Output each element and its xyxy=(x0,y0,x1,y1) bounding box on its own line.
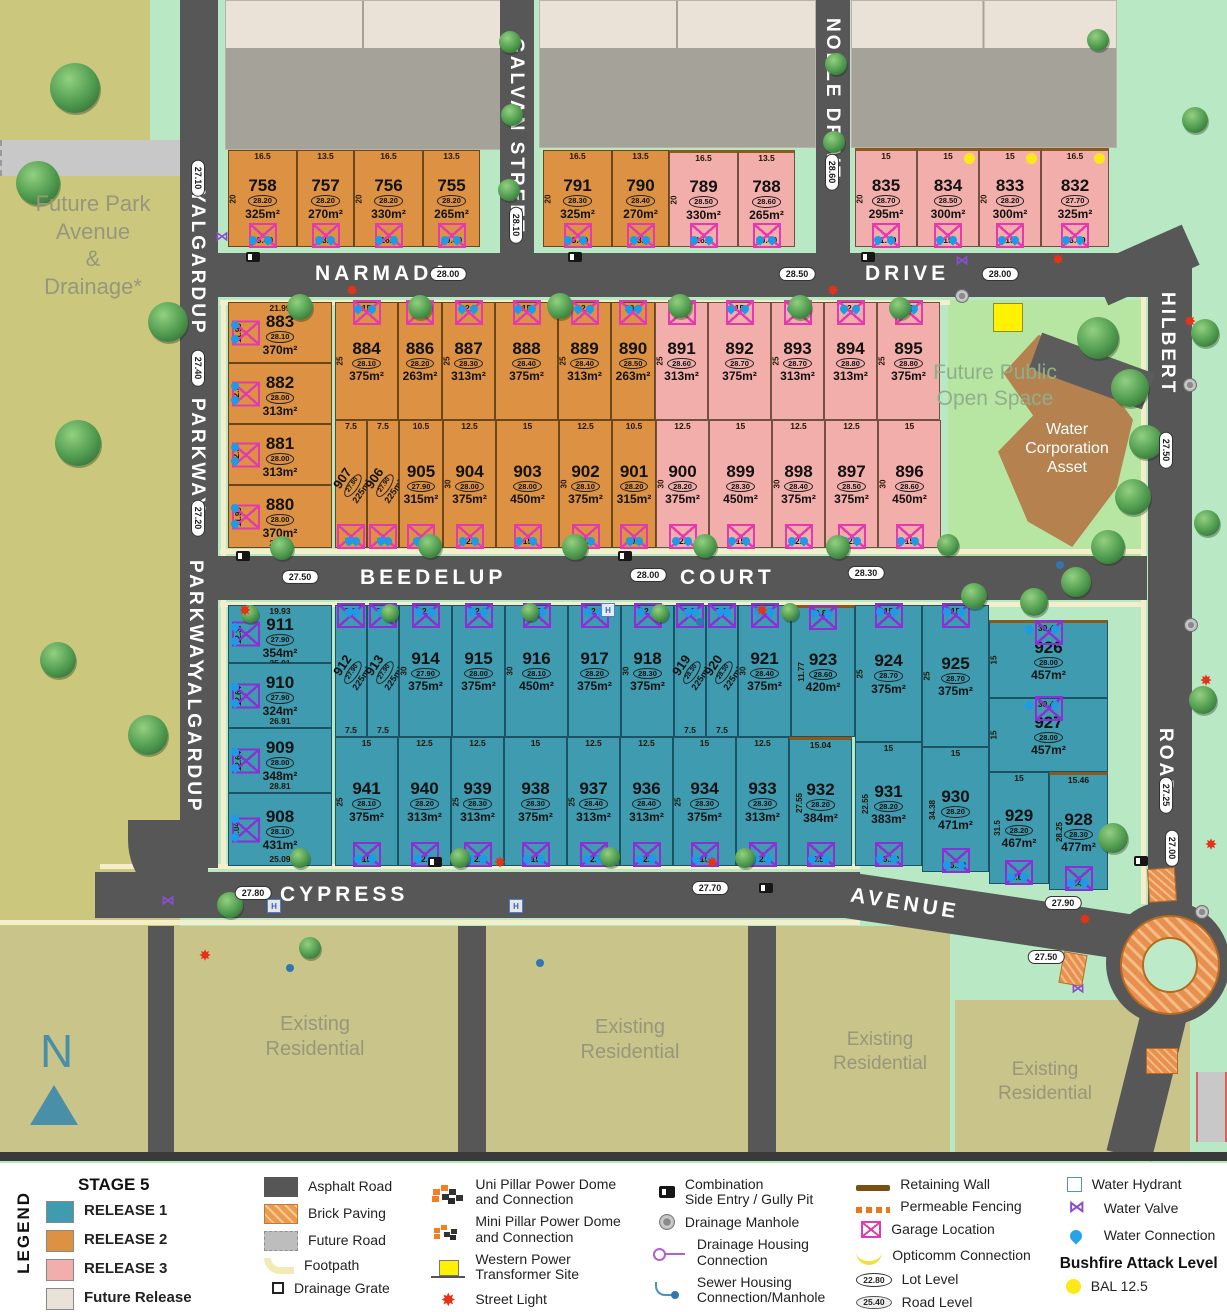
lot-number: 939 xyxy=(463,780,491,797)
tree-icon xyxy=(408,295,432,319)
lot-area: 450m² xyxy=(892,493,927,505)
fencing-icon xyxy=(856,1207,890,1213)
legend-item: Footpath xyxy=(264,1258,431,1274)
lot-depth-dim: 30 xyxy=(879,480,887,489)
lot-depth-dim: 20 xyxy=(670,195,678,204)
lot-758: 16.575828.20325m²13.4920 xyxy=(228,150,297,247)
lot-level: 28.10 xyxy=(266,826,295,838)
lot-area: 324m² xyxy=(263,705,298,717)
road-level-badge: 28.10 xyxy=(509,207,523,244)
lot-number: 904 xyxy=(455,463,483,480)
garage-location-icon xyxy=(455,300,483,325)
lot-info: 83428.50300m² xyxy=(931,177,966,220)
lot-level: 28.30 xyxy=(1064,829,1093,841)
traffic-island xyxy=(1146,1048,1178,1074)
lot-number: 882 xyxy=(266,374,294,391)
lot-dim-bottom: 7.5 xyxy=(716,726,728,735)
lot-depth-dim: 25 xyxy=(336,797,344,806)
street-light-icon: ✸ xyxy=(199,949,212,964)
legend-item: RELEASE 3 xyxy=(38,1259,264,1281)
lot-level: 28.50 xyxy=(689,196,718,208)
lot-info: 90527.90315m² xyxy=(404,463,439,506)
legend-stage-column: STAGE 5 RELEASE 1RELEASE 2RELEASE 3Futur… xyxy=(38,1173,264,1312)
lot-info: 91528.00375m² xyxy=(461,650,496,693)
road-level-badge: 28.00 xyxy=(430,267,467,281)
lot-dim-top: 12.5 xyxy=(790,422,807,431)
road-label-parkway-2: PARKWAY xyxy=(184,560,206,675)
lot-depth-dim: 20 xyxy=(355,194,363,203)
legend-item: Permeable Fencing xyxy=(856,1199,1059,1214)
lot-number: 898 xyxy=(784,463,812,480)
manhole-icon xyxy=(659,1214,675,1230)
lot-info: 78828.60265m² xyxy=(749,178,784,221)
lot-depth-dim: 20 xyxy=(980,194,988,203)
lot-area: 263m² xyxy=(616,370,651,382)
road-level-badge: 28.30 xyxy=(848,566,885,580)
road-level-badge: 27.50 xyxy=(282,570,319,584)
lot-901: 10.590128.20315m²10.5 xyxy=(612,420,656,548)
lot-number: 925 xyxy=(941,655,969,672)
brick-icon xyxy=(264,1204,298,1224)
lot-number: 923 xyxy=(809,651,837,668)
legend-section-header: Bushfire Attack Level xyxy=(1060,1255,1227,1273)
tree-icon xyxy=(1189,686,1217,714)
lot-info: 88028.00370m² xyxy=(263,496,298,539)
lot-area: 375m² xyxy=(509,370,544,382)
road-level-badge: 28.60 xyxy=(825,154,839,191)
lot-level: 28.20 xyxy=(437,195,466,207)
tree-icon xyxy=(937,534,959,556)
road-level-badge: 27.25 xyxy=(1159,777,1173,814)
sewer-manhole-icon xyxy=(696,618,704,626)
lot-number: 918 xyxy=(633,650,661,667)
legend-item: ⋈Water Valve xyxy=(1060,1199,1227,1219)
lot-791: 16.579128.30325m²13.4920 xyxy=(543,150,612,247)
lot-info: 92328.60420m² xyxy=(806,651,841,694)
lot-level: 28.50 xyxy=(837,481,866,493)
garage-location-icon xyxy=(1035,620,1063,645)
lot-info: 93928.30313m² xyxy=(460,780,495,823)
lot-757: 13.575728.20270m²13.5 xyxy=(297,150,354,247)
lot-dim-top: 15 xyxy=(951,749,960,758)
legend-item-label: Combination Side Entry / Gully Pit xyxy=(685,1177,813,1208)
road-level-badge: 28.50 xyxy=(779,267,816,281)
water-valve-icon: ⋈ xyxy=(162,894,175,907)
tree-icon xyxy=(40,642,76,678)
lot-level: 28.70 xyxy=(941,673,970,685)
lot-info: 90928.00348m² xyxy=(263,739,298,782)
roadlevel-icon: 25.40 xyxy=(856,1296,891,1310)
lot-info: 91427.90375m² xyxy=(408,650,443,693)
legend-item: Combination Side Entry / Gully Pit xyxy=(653,1177,856,1208)
street-light-icon: ✸ xyxy=(827,284,840,299)
street-light-icon: ✸ xyxy=(494,856,507,871)
north-label: N xyxy=(40,1028,73,1074)
lot-dim-top: 12.5 xyxy=(416,739,433,748)
legend-swatch xyxy=(46,1259,74,1281)
lot-756: 16.575628.20330m²16.520 xyxy=(354,150,423,247)
lot-933: 12.593328.30313m²12.5 xyxy=(736,737,789,866)
lot-info: 83227.70325m² xyxy=(1058,177,1093,220)
streetlight-icon: ✸ xyxy=(431,1290,465,1310)
lot-info: 88228.00313m² xyxy=(263,374,298,417)
tree-icon xyxy=(825,53,847,75)
lot-number: 884 xyxy=(352,340,380,357)
legend-item-label: Water Hydrant xyxy=(1092,1177,1182,1192)
lot-897: 12.589728.50375m²12.5 xyxy=(825,420,878,548)
drainage-manhole-icon xyxy=(1195,905,1209,919)
lot-dim-top: 15 xyxy=(943,152,952,161)
tree-icon xyxy=(826,535,850,559)
garage-location-icon xyxy=(465,603,493,628)
lot-833: 1583328.20300m²1520 xyxy=(979,148,1041,247)
lot-886: 10.588628.20263m² xyxy=(398,302,442,420)
lot-info: 93328.30313m² xyxy=(745,780,780,823)
tree-icon xyxy=(499,31,521,53)
lot-area: 313m² xyxy=(629,811,664,823)
lot-info: 89028.50263m² xyxy=(616,340,651,383)
lot-depth-dim: 25 xyxy=(452,797,460,806)
valve-icon: ⋈ xyxy=(1060,1199,1094,1219)
lot-dim-bottom: 25.09 xyxy=(269,855,290,864)
lotlevel-icon: 22.80 xyxy=(856,1273,891,1287)
road-level-badge: 28.00 xyxy=(982,267,1019,281)
lot-891: 12.589128.60313m²25 xyxy=(655,302,708,420)
lot-level: 28.40 xyxy=(570,358,599,370)
lot-number: 758 xyxy=(248,177,276,194)
tree-icon xyxy=(1194,510,1220,536)
lot-depth-dim: 25 xyxy=(856,669,864,678)
stage5-estate-plan: 16.575828.20325m²13.492013.575728.20270m… xyxy=(0,0,1227,1312)
legend-item-label: Opticomm Connection xyxy=(892,1248,1031,1263)
legend-column-roads: Asphalt RoadBrick PavingFuture RoadFootp… xyxy=(264,1173,431,1299)
lot-dim-top: 15 xyxy=(531,739,540,748)
legend-item: Retaining Wall xyxy=(856,1177,1059,1192)
lot-910: 91027.90324m²26.9112.64 xyxy=(228,663,332,728)
lot-area: 375m² xyxy=(408,680,443,692)
lot-area: 325m² xyxy=(1058,208,1093,220)
lot-903: 1590328.00450m²15 xyxy=(496,420,559,548)
lot-dim-top: 12.5 xyxy=(674,422,691,431)
lot-level: 27.70 xyxy=(1061,195,1090,207)
legend-item-label: RELEASE 1 xyxy=(84,1203,167,1220)
lot-area: 375m² xyxy=(747,680,782,692)
lot-940: 12.594028.20313m²12.5 xyxy=(398,737,451,866)
lot-number: 900 xyxy=(668,463,696,480)
legend-item-label: Water Connection xyxy=(1104,1228,1216,1243)
lot-area: 375m² xyxy=(781,493,816,505)
legend-item: Future Road xyxy=(264,1231,431,1251)
legend-item: Opticomm Connection xyxy=(856,1245,1059,1265)
lot-dim-top: 16.5 xyxy=(695,154,712,163)
lot-level: 28.40 xyxy=(579,798,608,810)
lot-914: 12.591427.90375m²30 xyxy=(399,605,452,737)
lot-dim-top: 15.46 xyxy=(1068,776,1089,785)
lot-info: 91127.90354m² xyxy=(263,616,298,659)
sewer-manhole-icon xyxy=(286,964,294,972)
lot-number: 887 xyxy=(454,340,482,357)
lot-dim-top: 13.5 xyxy=(317,152,334,161)
legend-item: Water Hydrant xyxy=(1060,1177,1227,1192)
lot-number: 789 xyxy=(689,178,717,195)
lot-881: 88128.00313m²12.5 xyxy=(228,424,332,485)
legend-side-label: LEGEND xyxy=(14,1191,34,1274)
garage-location-icon xyxy=(753,223,781,248)
lot-area: 375m² xyxy=(871,683,906,695)
drainage-manhole-icon xyxy=(1184,618,1198,632)
lot-level: 27.90 xyxy=(266,634,295,646)
lot-depth-dim: 25 xyxy=(878,357,886,366)
lot-info: 83328.20300m² xyxy=(993,177,1028,220)
tree-icon xyxy=(1077,317,1119,359)
lot-number: 909 xyxy=(266,739,294,756)
lot-info: 89828.40375m² xyxy=(781,463,816,506)
lot-info: 88428.10375m² xyxy=(349,340,384,383)
lot-834: 1583428.50300m²15 xyxy=(917,148,979,247)
gully-pit-icon xyxy=(236,551,250,561)
garage-location-icon xyxy=(620,524,648,549)
lot-number: 915 xyxy=(464,650,492,667)
lot-dim-top: 7.5 xyxy=(377,422,389,431)
road-label-hilbert: HILBERT xyxy=(1156,292,1178,395)
gully-icon xyxy=(659,1186,675,1198)
lot-number: 901 xyxy=(620,463,648,480)
lot-dim-top: 12.5 xyxy=(461,422,478,431)
lot-info: 75528.20265m² xyxy=(434,177,469,220)
lot-area: 330m² xyxy=(686,209,721,221)
lot-893: 12.589328.70313m²25 xyxy=(771,302,824,420)
lot-info: 79028.40270m² xyxy=(623,177,658,220)
lot-number: 756 xyxy=(374,177,402,194)
lot-dim-top: 13.5 xyxy=(758,154,775,163)
legend-item-label: Water Valve xyxy=(1104,1201,1179,1216)
gully-pit-icon xyxy=(1134,856,1148,866)
sewer-icon xyxy=(653,1280,687,1300)
lot-depth-dim: 25 xyxy=(656,357,664,366)
lot-depth-dim: 25 xyxy=(568,797,576,806)
lot-depth-dim: 25 xyxy=(674,797,682,806)
lot-889: 12.588928.40313m²25 xyxy=(558,302,611,420)
lot-info: 94028.20313m² xyxy=(407,780,442,823)
future-road-right xyxy=(1196,1072,1227,1142)
lot-dim-top: 15 xyxy=(881,152,890,161)
lot-906: 7.590627.90225m²7.5 xyxy=(367,420,399,548)
legend-item: Water Connection xyxy=(1060,1226,1227,1246)
lot-level: 28.30 xyxy=(454,358,483,370)
road-level-badge: 27.50 xyxy=(1159,432,1173,469)
legend-item: 22.80Lot Level xyxy=(856,1272,1059,1287)
lot-dim-top: 15 xyxy=(523,422,532,431)
gully-pit-icon xyxy=(428,857,442,867)
lot-area: 315m² xyxy=(617,493,652,505)
lot-dim-top: 13.5 xyxy=(632,152,649,161)
lot-area: 313m² xyxy=(460,811,495,823)
lot-dim-top: 7.5 xyxy=(345,422,357,431)
lot-level: 28.10 xyxy=(266,331,295,343)
tree-icon xyxy=(1087,29,1109,51)
lot-number: 890 xyxy=(619,340,647,357)
lot-904: 12.590428.00375m²12.530 xyxy=(443,420,496,548)
lot-depth-dim: 25 xyxy=(772,357,780,366)
lot-number: 917 xyxy=(580,650,608,667)
legend-swatch xyxy=(46,1288,74,1310)
lot-789: 16.578928.50330m²16.520 xyxy=(669,150,738,247)
lot-923: 8.8492328.60420m²11.77 xyxy=(791,605,855,737)
label-future-park: Future Park Avenue & Drainage* xyxy=(8,190,178,300)
lot-level: 28.80 xyxy=(836,358,865,370)
tree-icon xyxy=(562,534,588,560)
lot-side-dim: 15 xyxy=(990,731,998,740)
lot-info: 89428.80313m² xyxy=(833,340,868,383)
lot-area: 325m² xyxy=(560,208,595,220)
lot-level: 28.80 xyxy=(894,358,923,370)
lot-number: 937 xyxy=(579,780,607,797)
lot-dim-top: 16.5 xyxy=(569,152,586,161)
lot-level: 28.00 xyxy=(464,668,493,680)
lot-dim-top: 10.5 xyxy=(626,422,643,431)
legend-item: 25.40Road Level xyxy=(856,1295,1059,1310)
road-label-galvan-street: GALVAN STREET xyxy=(505,38,527,235)
road-level-badge: 27.50 xyxy=(1028,950,1065,964)
lot-913: 7.591327.90225m²7.5 xyxy=(367,605,399,737)
lot-924: 1592428.70375m²25 xyxy=(855,605,922,742)
lot-info: 78928.50330m² xyxy=(686,178,721,221)
lot-dim-top: 12.5 xyxy=(469,739,486,748)
lot-number: 934 xyxy=(690,780,718,797)
lot-level: 28.40 xyxy=(626,195,655,207)
lot-area: 313m² xyxy=(664,370,699,382)
lot-info: 93828.30375m² xyxy=(518,780,553,823)
lot-number: 931 xyxy=(874,783,902,800)
lot-info: 90428.00375m² xyxy=(452,463,487,506)
tree-icon xyxy=(788,295,812,319)
lot-info: 89728.50375m² xyxy=(834,463,869,506)
label-existing-3: Existing Residential xyxy=(805,1028,955,1076)
lot-number: 911 xyxy=(266,616,293,633)
roundabout-island xyxy=(1142,937,1198,993)
label-open-space: Future Public Open Space xyxy=(930,360,1060,413)
road-label-parkway-1: PARKWAY xyxy=(186,398,208,513)
lot-info: 88928.40313m² xyxy=(567,340,602,383)
legend-item-label: Footpath xyxy=(304,1258,359,1273)
tree-icon xyxy=(270,536,294,560)
lot-area: 325m² xyxy=(245,208,280,220)
water-valve-icon: ⋈ xyxy=(956,254,969,267)
lot-908: 90828.10431m²25.099.04 xyxy=(228,793,332,866)
label-existing-1: Existing Residential xyxy=(230,1012,400,1062)
lot-info: 89228.70375m² xyxy=(722,340,757,383)
lot-number: 833 xyxy=(996,177,1024,194)
lot-level: 28.50 xyxy=(934,195,963,207)
tree-icon xyxy=(287,294,313,320)
lot-938: 1593828.30375m²15 xyxy=(504,737,567,866)
north-arrow-icon xyxy=(30,1085,78,1125)
lot-dim-top: 16.5 xyxy=(1067,152,1084,161)
water-icon xyxy=(1060,1226,1094,1246)
legend-item: RELEASE 2 xyxy=(38,1230,264,1252)
bal-icon xyxy=(1066,1279,1081,1294)
tree-icon xyxy=(961,583,987,609)
lot-area: 313m² xyxy=(780,370,815,382)
garage-location-icon xyxy=(456,524,484,549)
legend-item-label: Road Level xyxy=(902,1295,973,1310)
tree-icon xyxy=(501,104,523,126)
lot-931: 1593128.20383m²16.1222.55 xyxy=(855,742,922,866)
unipillar-icon xyxy=(431,1182,465,1202)
tree-icon xyxy=(651,604,669,622)
street-light-icon: ✸ xyxy=(1079,913,1092,928)
lot-level: 27.90 xyxy=(266,692,295,704)
lot-dim-top: 15 xyxy=(1014,774,1023,783)
lot-number: 880 xyxy=(266,496,294,513)
lot-area: 375m² xyxy=(834,493,869,505)
lot-info: 90128.20315m² xyxy=(617,463,652,506)
lot-side-dim: 27.55 xyxy=(796,792,804,812)
tree-icon xyxy=(381,604,399,622)
lot-level: 28.60 xyxy=(809,669,838,681)
lot-area: 330m² xyxy=(371,208,406,220)
tree-icon xyxy=(668,294,692,318)
lot-level: 27.90 xyxy=(411,668,440,680)
road-label-beedelup: BEEDELUP xyxy=(360,567,506,588)
road-label-yalgardup-1: YALGARDUP xyxy=(186,190,208,336)
retaining-icon xyxy=(856,1185,890,1191)
legend-stage-title: STAGE 5 xyxy=(78,1175,264,1195)
lot-level: 28.00 xyxy=(266,757,295,769)
tree-icon xyxy=(600,847,620,867)
lot-921: 12.592128.40375m²30 xyxy=(738,605,791,737)
lot-depth-dim: 30 xyxy=(773,480,781,489)
lot-level: 28.00 xyxy=(1034,732,1063,744)
lot-level: 28.50 xyxy=(619,358,648,370)
lot-902: 12.590228.10375m²12.530 xyxy=(559,420,612,548)
lot-area: 384m² xyxy=(803,812,838,824)
lot-level: 28.70 xyxy=(783,358,812,370)
lot-info: 88628.20263m² xyxy=(403,340,438,383)
lot-dim-top: 15.04 xyxy=(810,741,831,750)
hydrant-icon xyxy=(1067,1177,1082,1192)
legend-item-label: Mini Pillar Power Dome and Connection xyxy=(475,1214,620,1245)
street-light-icon: ✸ xyxy=(1052,253,1065,268)
lot-level: 28.00 xyxy=(455,481,484,493)
lot-number: 903 xyxy=(513,463,541,480)
lot-number: 914 xyxy=(411,650,439,667)
lot-depth-dim: 30 xyxy=(444,480,452,489)
lot-level: 28.30 xyxy=(726,481,755,493)
legend-item: Future Release xyxy=(38,1288,264,1310)
legend-item: RELEASE 1 xyxy=(38,1201,264,1223)
lot-area: 375m² xyxy=(722,370,757,382)
lot-894: 12.589428.80313m² xyxy=(824,302,877,420)
tree-icon xyxy=(290,848,310,868)
lot-number: 835 xyxy=(872,177,900,194)
lot-number: 788 xyxy=(752,178,780,195)
tree-icon xyxy=(521,603,539,621)
tree-icon xyxy=(1115,479,1151,515)
lot-927: 30.4692728.00457m²15 xyxy=(989,698,1108,772)
legend-item-label: Street Light xyxy=(475,1292,547,1307)
tree-icon xyxy=(1098,823,1128,853)
lot-area: 431m² xyxy=(263,839,298,851)
lot-area: 471m² xyxy=(938,819,973,831)
water-hydrant-icon: H xyxy=(267,899,281,913)
lot-level: 28.30 xyxy=(463,798,492,810)
lot-level: 28.20 xyxy=(620,481,649,493)
lot-info: 90228.10375m² xyxy=(568,463,603,506)
lot-info: 91628.10450m² xyxy=(519,650,554,693)
lot-area: 383m² xyxy=(871,813,906,825)
lot-level: 28.20 xyxy=(668,481,697,493)
